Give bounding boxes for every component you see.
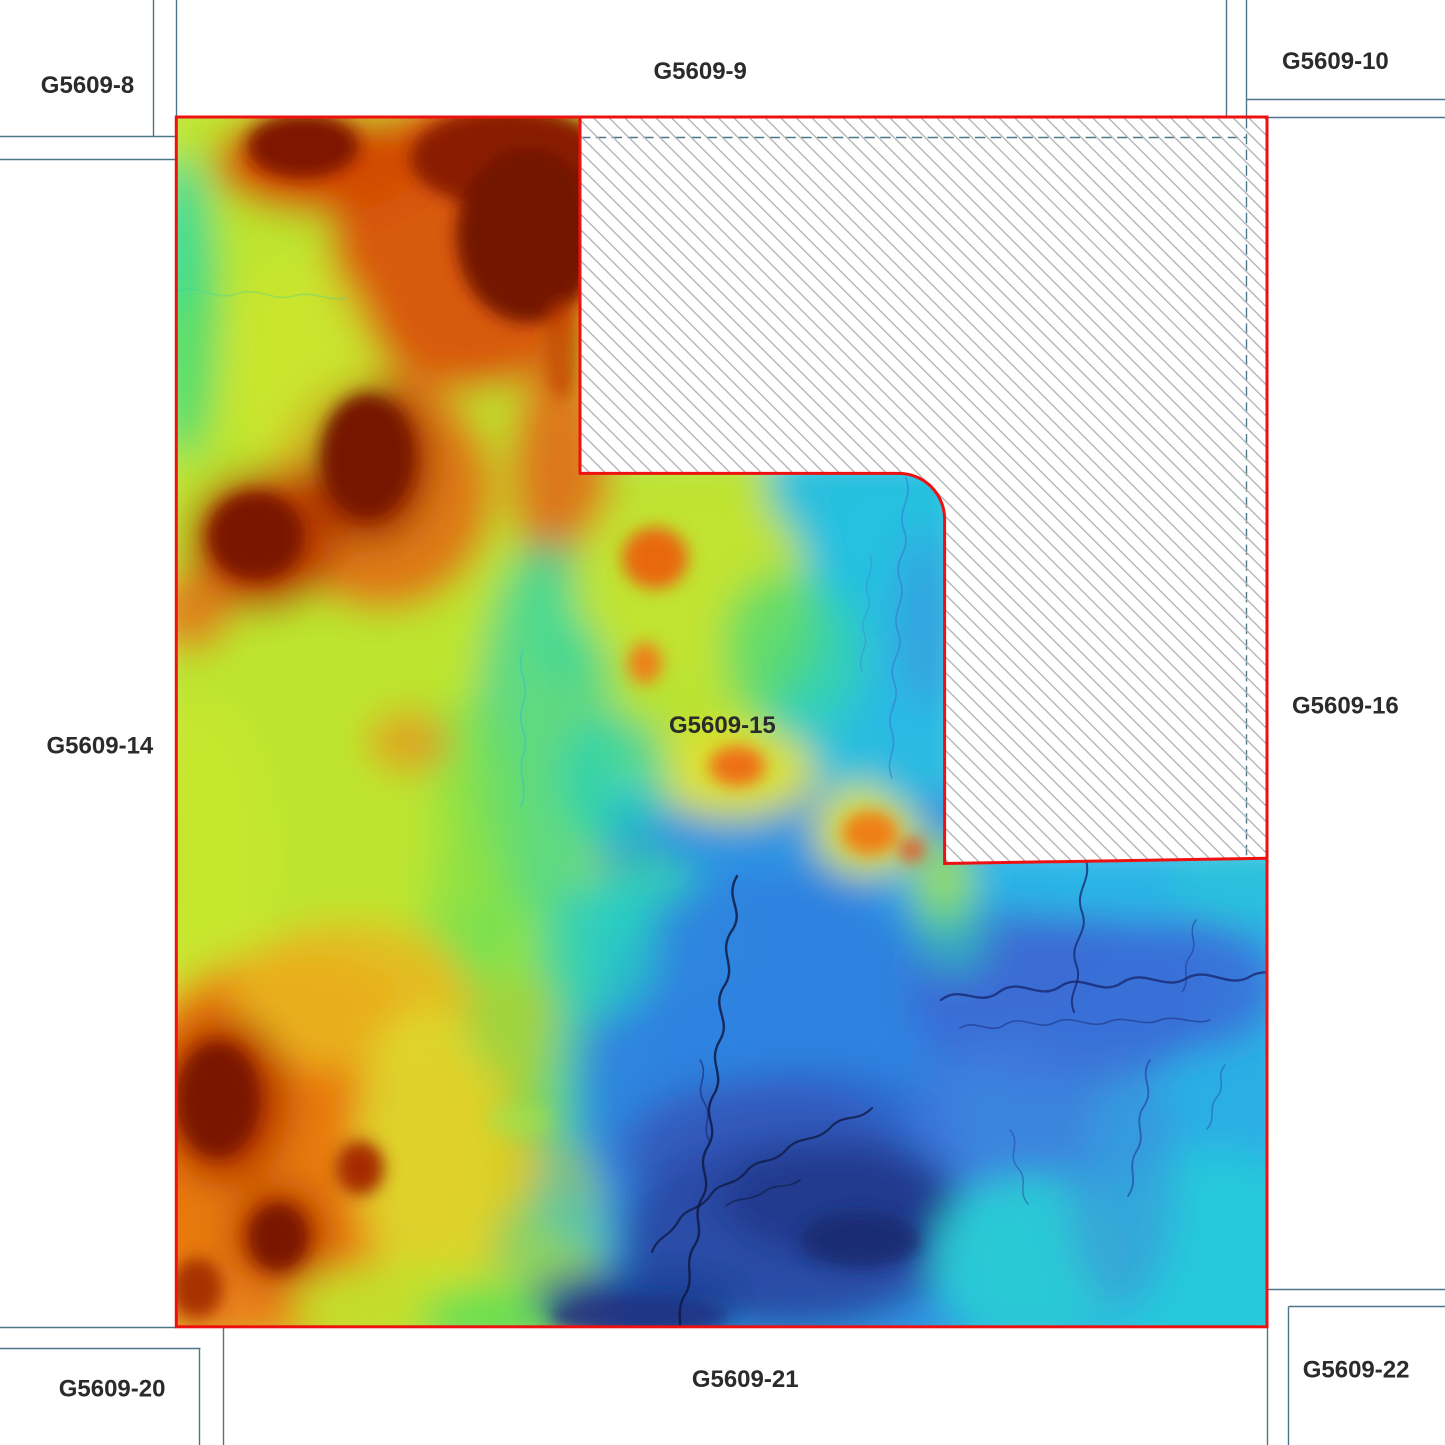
svg-text:G5609-15: G5609-15 xyxy=(669,712,776,739)
svg-text:G5609-10: G5609-10 xyxy=(1282,48,1389,75)
svg-text:G5609-16: G5609-16 xyxy=(1292,692,1399,719)
svg-text:G5609-9: G5609-9 xyxy=(653,58,746,85)
svg-text:G5609-8: G5609-8 xyxy=(41,72,134,99)
svg-text:G5609-22: G5609-22 xyxy=(1303,1357,1410,1384)
svg-text:G5609-20: G5609-20 xyxy=(59,1376,166,1403)
svg-text:G5609-21: G5609-21 xyxy=(692,1366,799,1393)
svg-text:G5609-14: G5609-14 xyxy=(47,732,154,759)
